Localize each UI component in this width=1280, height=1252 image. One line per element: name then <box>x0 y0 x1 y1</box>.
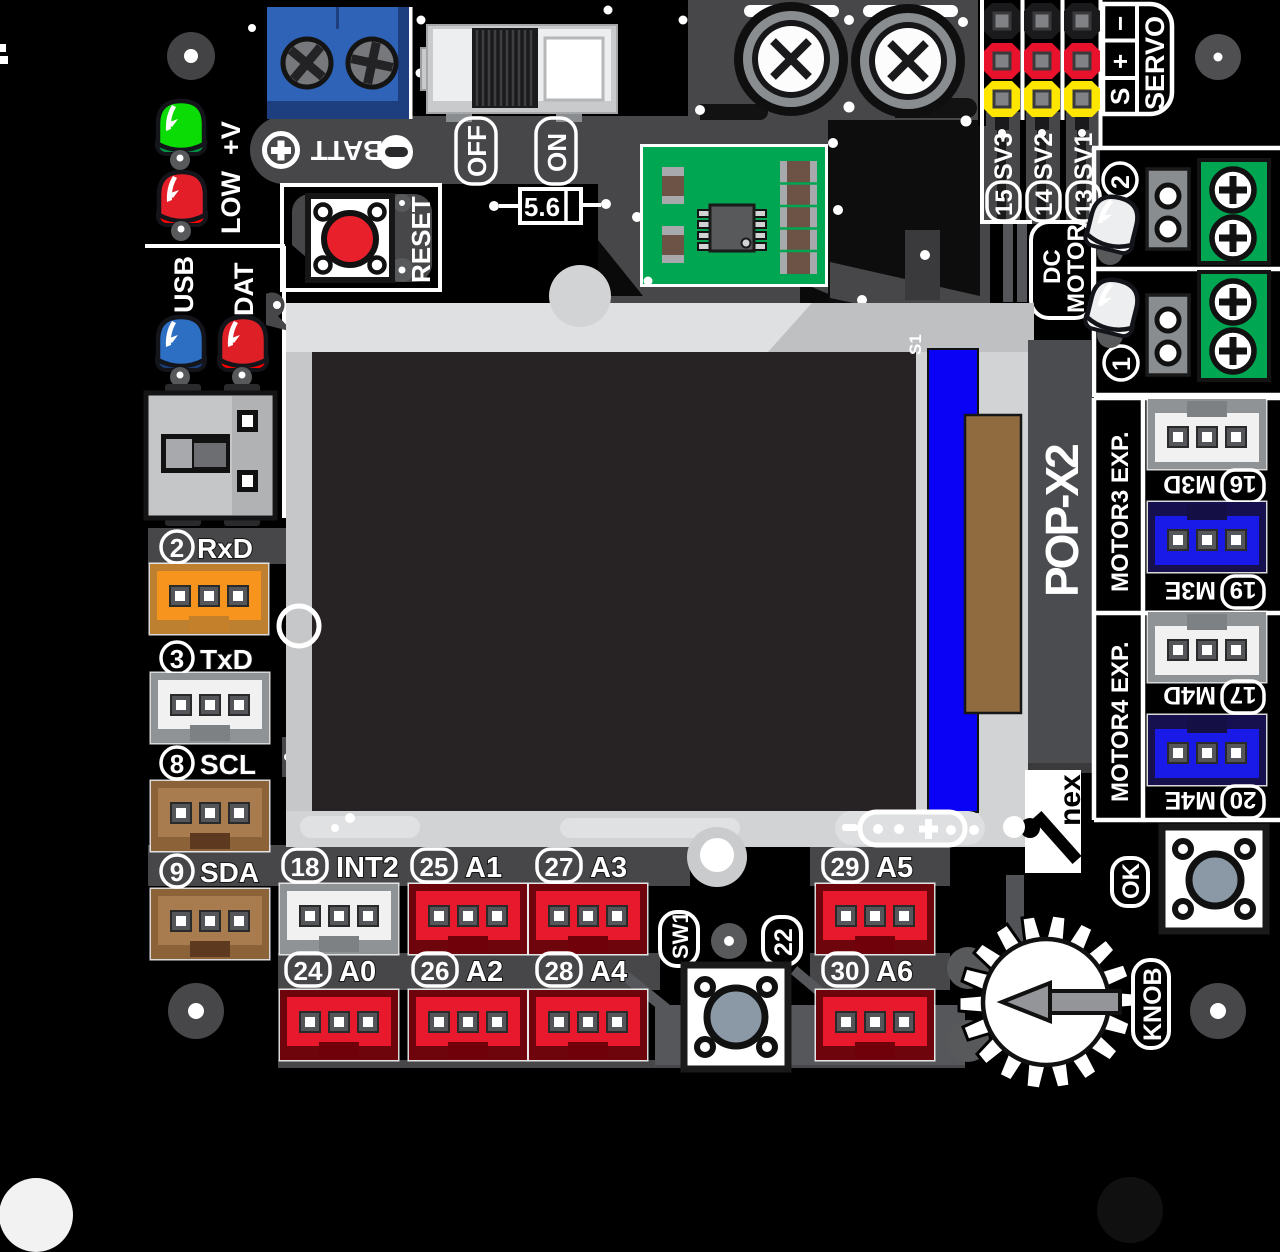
svg-text:22: 22 <box>770 928 798 956</box>
svg-text:29: 29 <box>831 852 860 882</box>
svg-text:8: 8 <box>170 749 184 779</box>
svg-text:2: 2 <box>1107 175 1135 189</box>
svg-text:RxD: RxD <box>197 533 253 564</box>
svg-text:16: 16 <box>1230 470 1257 497</box>
svg-text:INT2: INT2 <box>336 852 399 884</box>
svg-text:USB: USB <box>169 256 199 313</box>
svg-text:28: 28 <box>545 956 574 986</box>
svg-text:27: 27 <box>545 852 574 882</box>
svg-text:A3: A3 <box>590 852 627 884</box>
svg-text:18: 18 <box>291 852 320 882</box>
svg-text:A0: A0 <box>339 956 376 988</box>
svg-text:A5: A5 <box>876 852 913 884</box>
svg-text:OFF: OFF <box>462 125 492 177</box>
svg-text:M4E: M4E <box>1165 786 1216 814</box>
svg-text:MOTOR4 EXP.: MOTOR4 EXP. <box>1107 642 1134 803</box>
svg-text:BATT: BATT <box>311 135 384 166</box>
svg-text:S: S <box>1105 88 1135 105</box>
svg-text:20: 20 <box>1230 786 1257 813</box>
svg-text:KNOB: KNOB <box>1139 967 1167 1041</box>
svg-text:SCL: SCL <box>200 749 256 780</box>
svg-text:S1: S1 <box>906 334 925 355</box>
svg-text:LOW: LOW <box>216 171 246 234</box>
svg-text:15: 15 <box>991 189 1018 216</box>
svg-text:SV3: SV3 <box>990 133 1018 180</box>
svg-text:+: + <box>1105 54 1135 69</box>
svg-text:A1: A1 <box>465 852 502 884</box>
svg-text:A6: A6 <box>876 956 913 988</box>
svg-text:OK: OK <box>1118 862 1145 899</box>
svg-text:RESET: RESET <box>406 196 436 283</box>
svg-text:SDA: SDA <box>200 857 259 888</box>
svg-text:26: 26 <box>421 956 450 986</box>
svg-text:A2: A2 <box>466 956 503 988</box>
svg-text:14: 14 <box>1031 189 1058 216</box>
svg-text:POP-X2: POP-X2 <box>1036 445 1088 597</box>
svg-text:M3E: M3E <box>1165 576 1216 604</box>
svg-text:19: 19 <box>1230 576 1257 603</box>
svg-text:M3D: M3D <box>1163 470 1216 498</box>
svg-text:SV2: SV2 <box>1030 133 1058 180</box>
svg-text:DC: DC <box>1039 249 1066 284</box>
svg-text:3: 3 <box>170 644 184 674</box>
svg-text:ON: ON <box>542 133 572 172</box>
svg-text:M4D: M4D <box>1163 681 1216 709</box>
svg-text:2: 2 <box>170 533 184 563</box>
svg-text:24: 24 <box>294 956 323 986</box>
svg-text:SW1: SW1 <box>668 911 693 959</box>
svg-text:MOTOR3 EXP.: MOTOR3 EXP. <box>1107 432 1134 593</box>
svg-text:5.6: 5.6 <box>524 192 560 222</box>
svg-text:DAT: DAT <box>229 262 259 316</box>
svg-text:1: 1 <box>1108 357 1136 371</box>
svg-text:SERVO: SERVO <box>1140 16 1170 110</box>
svg-text:17: 17 <box>1230 681 1257 708</box>
svg-text:30: 30 <box>831 956 860 986</box>
svg-text:−: − <box>1105 16 1135 31</box>
svg-text:nex: nex <box>1054 774 1087 826</box>
svg-text:A4: A4 <box>590 956 627 988</box>
svg-text:9: 9 <box>170 857 184 887</box>
svg-text:+V: +V <box>216 121 246 155</box>
svg-text:25: 25 <box>420 852 449 882</box>
svg-text:TxD: TxD <box>200 644 253 675</box>
